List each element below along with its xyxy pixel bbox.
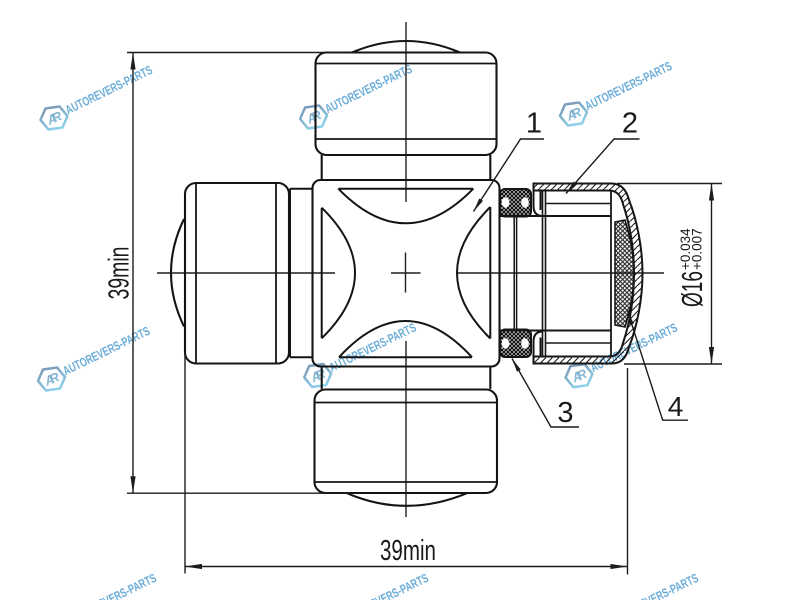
svg-text:+0.007: +0.007 xyxy=(690,228,705,270)
svg-text:1: 1 xyxy=(526,108,542,140)
svg-text:39min: 39min xyxy=(104,247,136,300)
svg-text:4: 4 xyxy=(668,391,684,422)
svg-text:39min: 39min xyxy=(380,535,436,567)
svg-text:Ø16: Ø16 xyxy=(677,271,709,307)
svg-text:2: 2 xyxy=(622,108,638,140)
svg-text:3: 3 xyxy=(557,397,573,429)
